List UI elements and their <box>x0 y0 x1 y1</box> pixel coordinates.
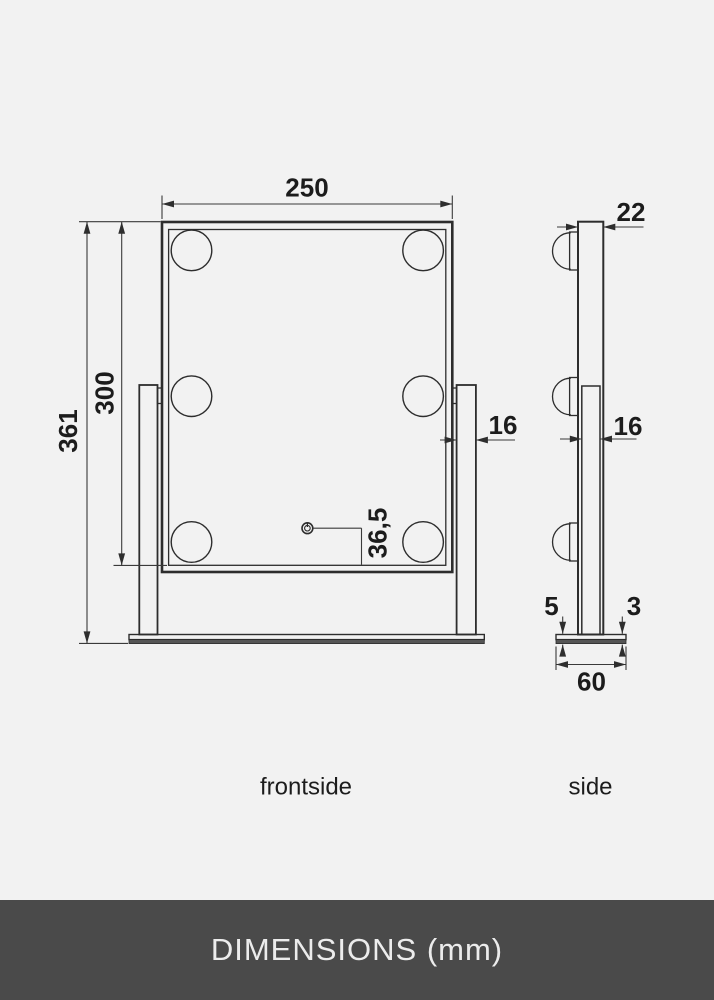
dim-base-plate-thickness-label: 3 <box>627 591 641 621</box>
footer-title: DIMENSIONS (mm) <box>211 932 503 968</box>
dim-base-top-thickness-label: 5 <box>544 591 558 621</box>
front-base-top <box>129 635 484 640</box>
side-bulb-flange-top <box>570 232 578 270</box>
dim-side-thickness-label: 22 <box>617 197 646 227</box>
side-base-plate <box>556 640 626 644</box>
mirror-frame <box>162 222 452 572</box>
technical-drawing: 250 361 300 16 36,5 <box>0 0 714 900</box>
dim-front-width-label: 250 <box>285 173 328 203</box>
side-bulbs <box>553 232 578 561</box>
dim-side-arm-thickness-label: 16 <box>614 411 643 441</box>
dim-base-depth: 60 <box>556 647 626 697</box>
front-left-arm <box>139 385 157 635</box>
dim-front-total-height-label: 361 <box>53 409 83 452</box>
side-bulb-flange-bottom <box>570 523 578 561</box>
dim-base-depth-label: 60 <box>577 667 606 697</box>
side-bulb-dome-top <box>553 233 571 270</box>
dim-front-mirror-height-label: 300 <box>90 371 120 414</box>
side-arm <box>582 386 600 635</box>
side-bulb-dome-bottom <box>553 524 571 561</box>
front-base-plate <box>129 640 484 644</box>
footer-bar: DIMENSIONS (mm) <box>0 900 714 1000</box>
dimension-drawing-page: 250 361 300 16 36,5 <box>0 0 714 1000</box>
dim-base-plate-thickness: 3 <box>622 591 641 657</box>
front-view-caption: frontside <box>260 774 352 801</box>
dim-base-top-thickness: 5 <box>544 591 562 657</box>
dim-front-mirror-height: 300 <box>90 222 168 566</box>
side-bulb-flange-middle <box>570 378 578 416</box>
front-right-arm <box>457 385 476 635</box>
dim-front-width: 250 <box>162 173 452 220</box>
side-view-caption: side <box>568 774 612 801</box>
side-bulb-dome-middle <box>553 378 571 415</box>
dim-button-offset-label: 36,5 <box>363 508 393 559</box>
dim-front-total-height: 361 <box>53 222 161 644</box>
dim-front-arm-width-label: 16 <box>489 410 518 440</box>
front-view <box>129 222 484 644</box>
